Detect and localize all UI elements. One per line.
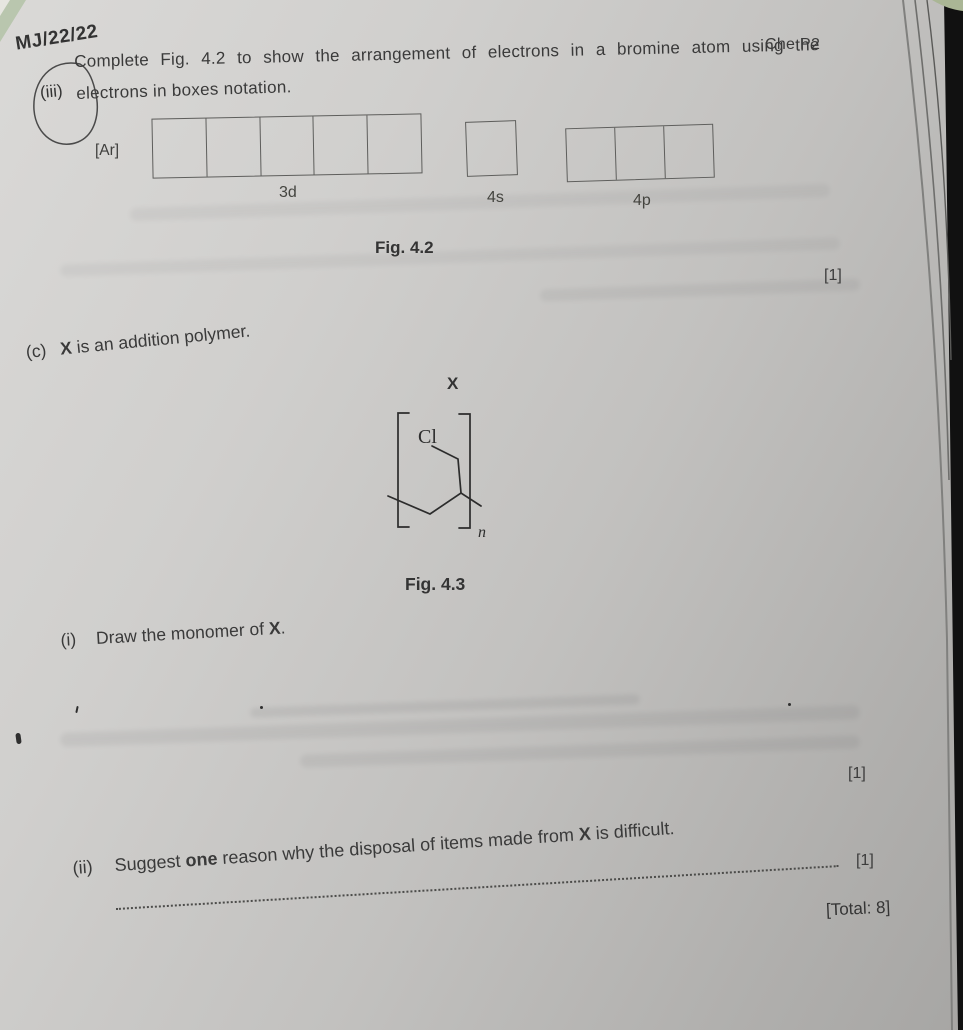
orbital-box-group-4p (565, 124, 715, 183)
question-part-label-c: (c) (25, 340, 47, 362)
question-i-period: . (280, 617, 286, 637)
orbital-box-group-4s (465, 120, 518, 177)
question-part-label-i: (i) (60, 629, 77, 650)
orbital-box (664, 125, 714, 178)
chlorine-label: Cl (418, 426, 437, 448)
noble-gas-core-label: [Ar] (95, 142, 119, 160)
photographed-exam-page: MJ/22/22 (iii) Che P2 Complete Fig. 4.2 … (0, 0, 963, 1030)
ink-speck (788, 703, 791, 706)
polymer-structure-diagram: Cl n (378, 398, 503, 543)
one-bold: one (185, 848, 218, 870)
total-marks: [Total: 8] (826, 898, 891, 921)
orbital-label-3d: 3d (279, 184, 297, 202)
orbital-box (206, 118, 261, 177)
marks-badge: [1] (856, 852, 874, 870)
figure-caption-4-2: Fig. 4.2 (375, 238, 434, 258)
orbital-box-group-3d (151, 113, 422, 178)
repeat-subscript-n: n (478, 524, 486, 541)
question-ii-text-3: is difficult. (590, 818, 675, 844)
marks-badge: [1] (848, 765, 866, 783)
marks-badge: [1] (824, 267, 842, 285)
orbital-box (260, 116, 315, 175)
orbital-label-4p: 4p (633, 192, 651, 210)
orbital-box (466, 121, 517, 176)
structure-title-x: X (447, 374, 458, 394)
orbital-box (314, 115, 369, 174)
orbital-box (368, 114, 422, 173)
orbital-box (152, 119, 207, 178)
left-bracket (398, 413, 409, 527)
spacer (93, 871, 115, 872)
spacer (76, 644, 96, 645)
orbital-label-4s: 4s (487, 189, 504, 207)
question-part-label-ii: (ii) (72, 857, 93, 878)
figure-caption-4-3: Fig. 4.3 (405, 574, 465, 595)
carbon-chain-bond (388, 493, 481, 514)
question-part-label-iii: (iii) (39, 81, 63, 103)
ink-speck (260, 706, 263, 709)
orbital-box (566, 128, 617, 182)
right-bracket (459, 414, 470, 528)
spacer (47, 355, 61, 356)
cl-bond (432, 446, 461, 493)
question-ii-text-1: Suggest (114, 851, 186, 876)
orbital-box (615, 126, 666, 180)
